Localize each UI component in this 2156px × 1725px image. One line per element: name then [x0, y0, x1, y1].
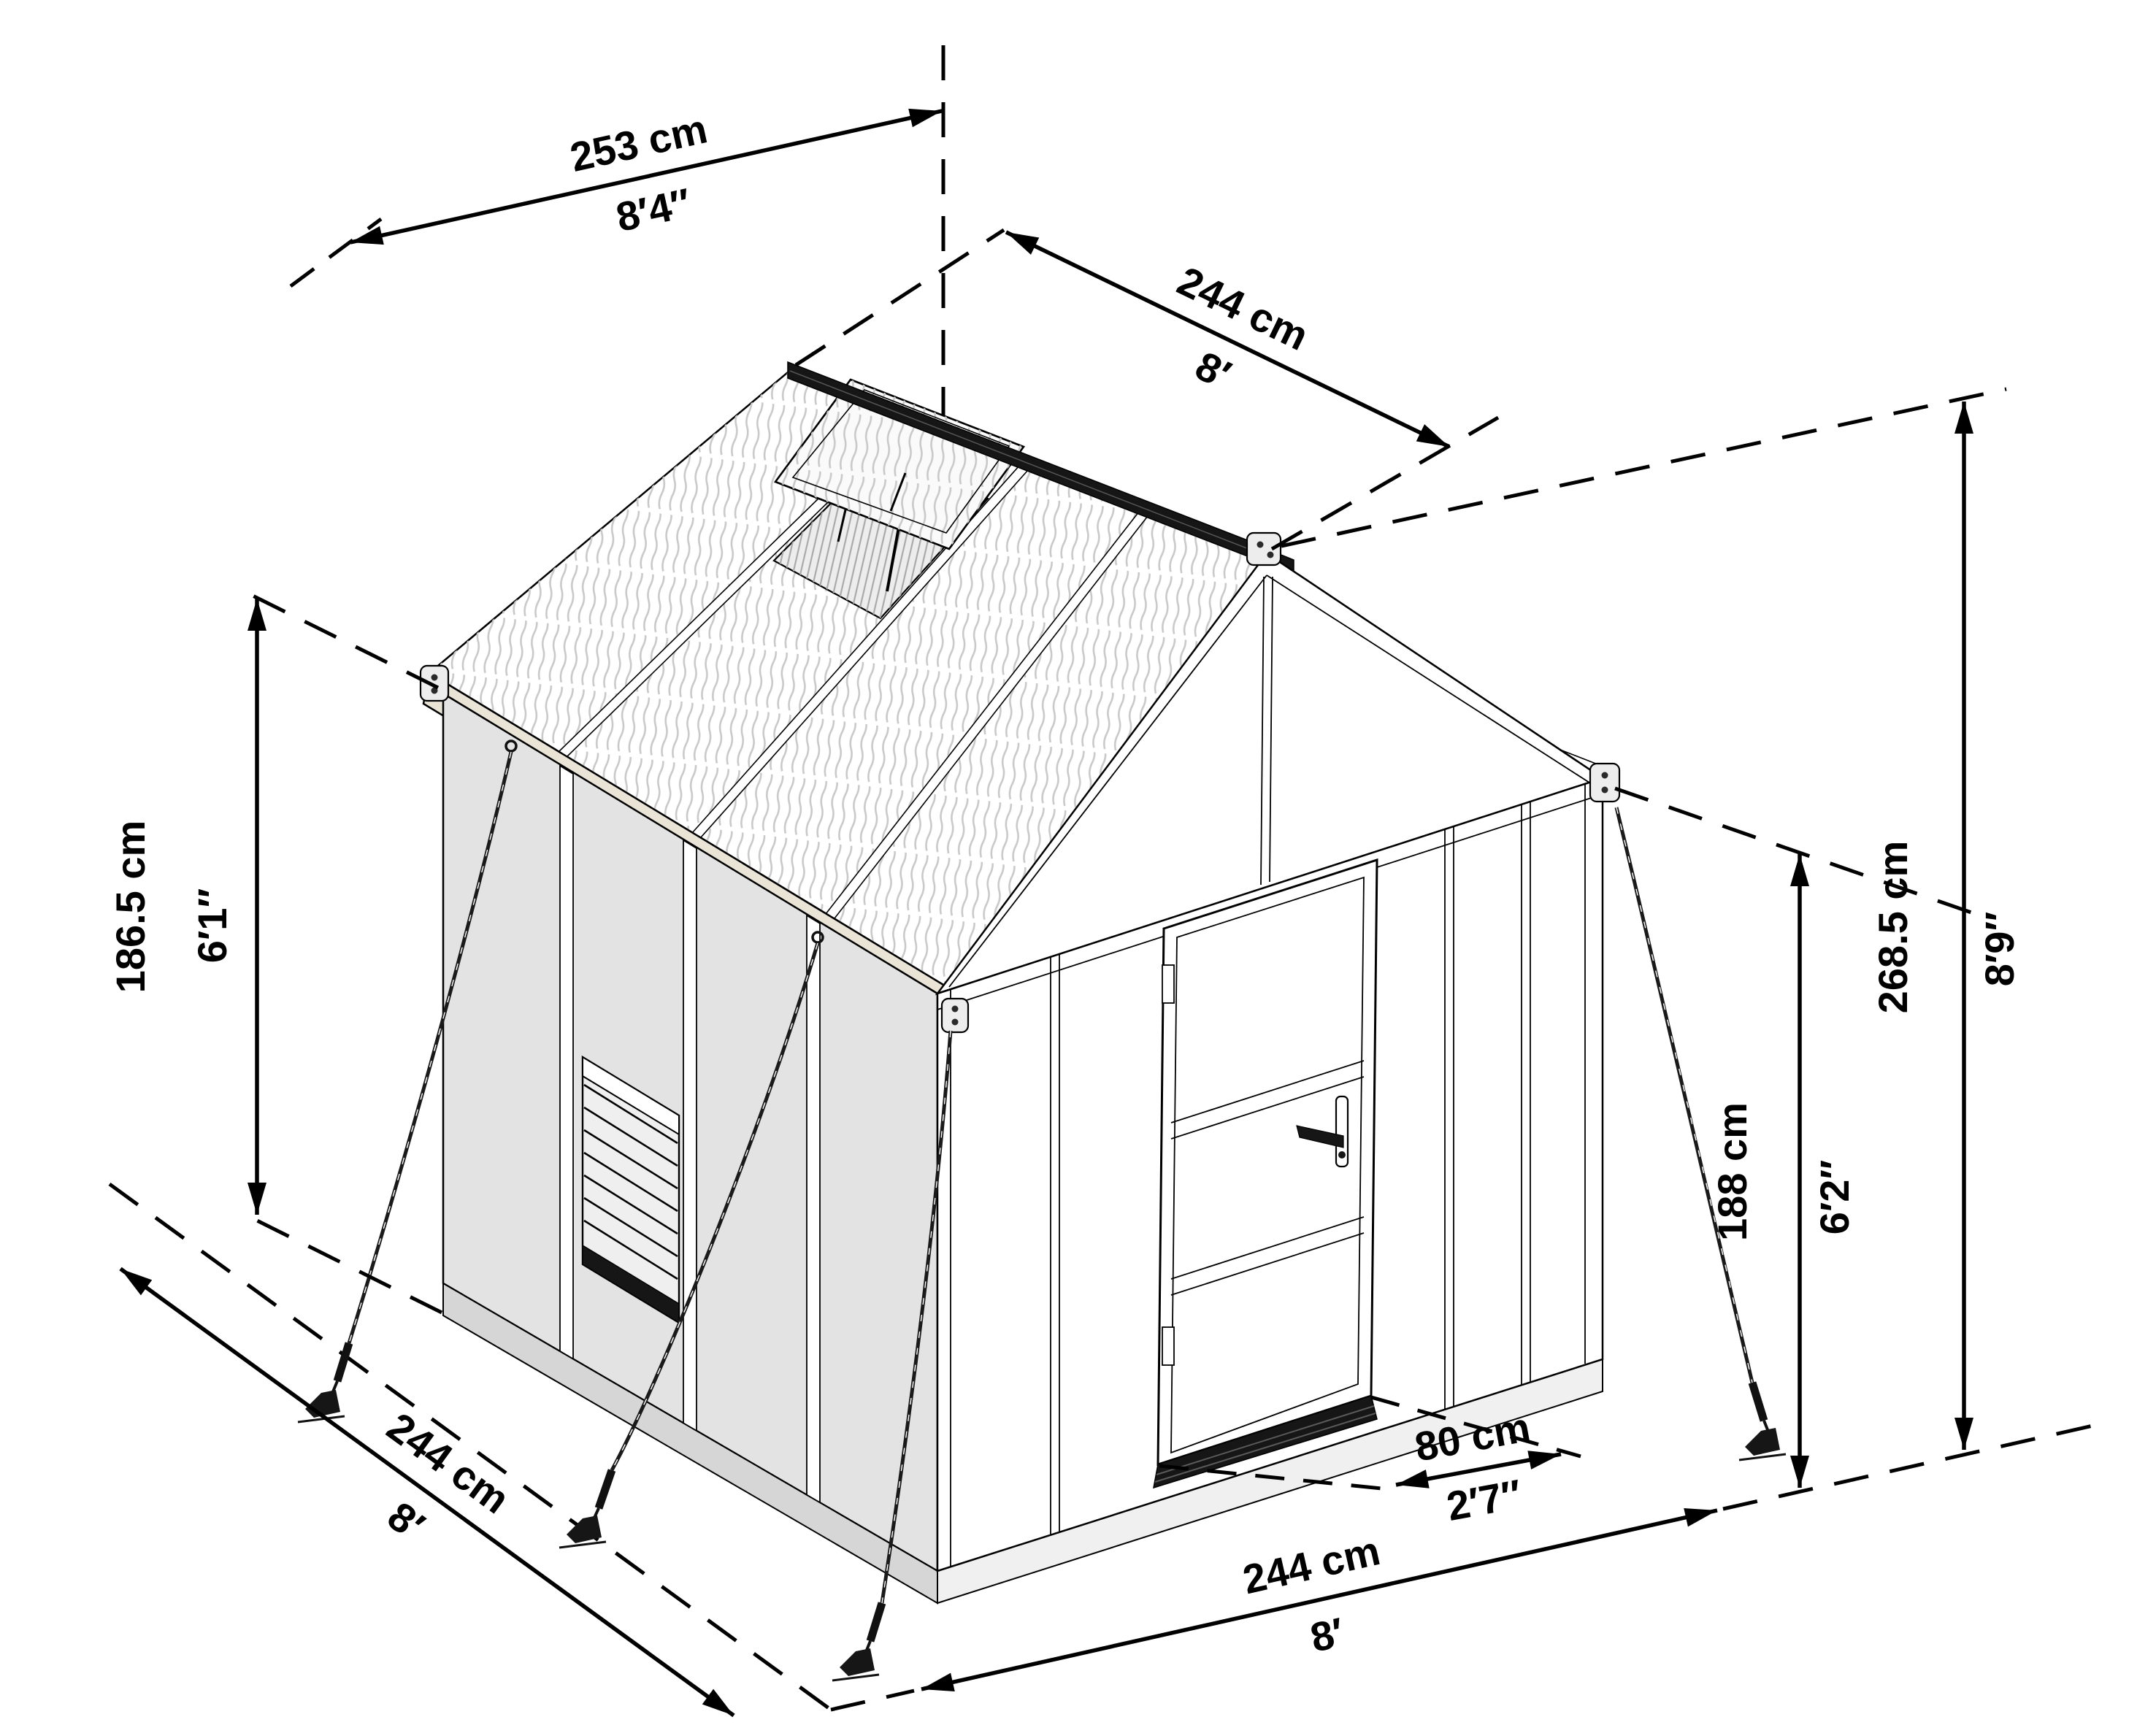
corner-bracket-front-right [1590, 764, 1619, 802]
side-wall-mullion [683, 840, 697, 1432]
diagram-canvas: 253 cm 8′4″ 244 cm 8′ 268.5 cm 8′9″ 188 … [0, 0, 2156, 1725]
dim-door-width-imperial: 2′7″ [1443, 1470, 1525, 1529]
dimension-roof-panel-width: 253 cm 8′4″ [291, 105, 942, 286]
dim-roof-panel-width-imperial: 8′4″ [612, 180, 695, 241]
door-hinge [1162, 965, 1174, 1003]
side-wall-mullion [560, 766, 573, 1359]
dim-floor-width-imperial: 8′ [1306, 1609, 1348, 1661]
ground-anchor-1 [305, 1390, 340, 1418]
dim-wall-height-metric: 188 cm [1709, 1102, 1755, 1241]
dim-roof-depth-metric: 244 cm [1170, 258, 1315, 359]
corner-bracket-back-left [421, 666, 448, 701]
dim-eave-height-imperial: 6′1″ [189, 888, 235, 964]
side-wall-mullion [807, 915, 820, 1503]
corner-bracket-front-left [942, 999, 968, 1032]
door [1154, 860, 1377, 1488]
dim-floor-depth-imperial: 8′ [380, 1493, 433, 1549]
ground-anchor-4 [1745, 1428, 1780, 1456]
footprint-front-edge-left-dash [831, 1691, 914, 1710]
dim-wall-height-imperial: 6′2″ [1811, 1160, 1857, 1235]
greenhouse-dimension-diagram: 253 cm 8′4″ 244 cm 8′ 268.5 cm 8′9″ 188 … [0, 0, 2156, 1725]
dim-ridge-height-imperial: 8′9″ [1976, 912, 2022, 987]
greenhouse-illustration [298, 362, 1786, 1680]
dim-eave-height-metric: 186.5 cm [107, 821, 153, 994]
anchor-cable-4 [1616, 807, 1786, 1460]
dim-ridge-height-metric: 268.5 cm [1870, 841, 1916, 1014]
footprint-front-edge-right-dash [1723, 1424, 2103, 1509]
corner-bracket-ridge [1247, 533, 1281, 565]
ground-anchor-3 [840, 1648, 875, 1676]
dimension-wall-height: 188 cm 6′2″ [1615, 788, 1971, 1488]
dim-roof-depth-imperial: 8′ [1189, 342, 1238, 398]
door-hinge [1162, 1327, 1174, 1365]
